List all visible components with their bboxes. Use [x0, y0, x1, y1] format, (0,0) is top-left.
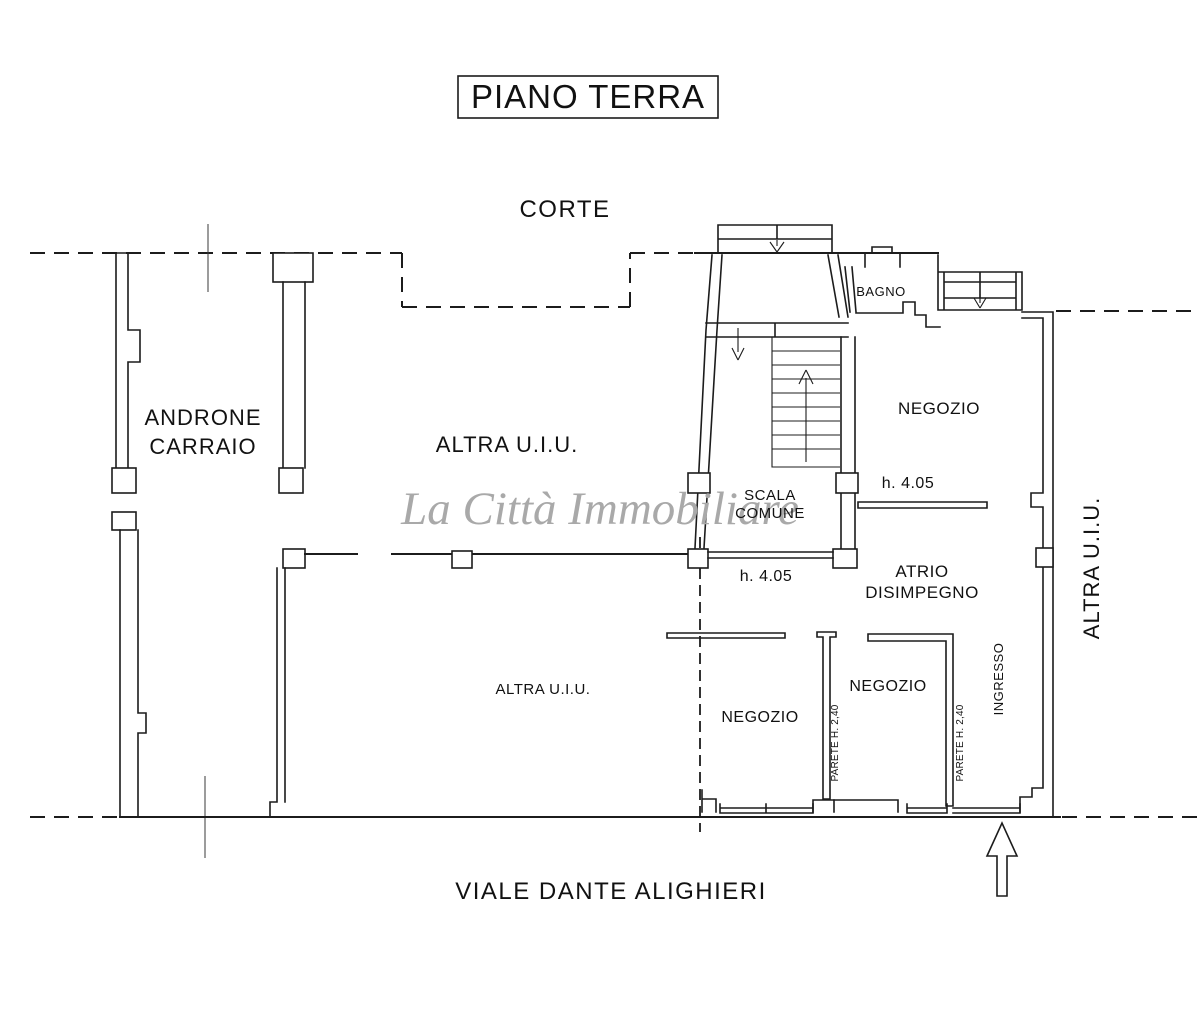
balcony-down-arrow: [770, 240, 784, 252]
label-negozio-left: NEGOZIO: [721, 709, 798, 726]
label-negozio-middle: NEGOZIO: [849, 678, 926, 695]
facade-recessed-front: [834, 800, 898, 812]
page-title: PIANO TERRA: [471, 78, 705, 115]
label-height-stair: h. 4.05: [740, 568, 792, 585]
driveway-lower-right-wall: [270, 568, 285, 817]
floor-plan-page: PIANO TERRA La Città Immobiliare CORTE V…: [0, 0, 1203, 1024]
shop-window-middle: [907, 804, 947, 813]
label-androne-1: ANDRONE: [144, 405, 261, 430]
label-height-shop: h. 4.05: [882, 475, 934, 492]
pilaster: [279, 468, 303, 493]
label-street: VIALE DANTE ALIGHIERI: [455, 878, 767, 905]
label-corte: CORTE: [519, 196, 610, 223]
label-parete-right: PARETE H. 2,40: [955, 704, 966, 781]
title-box: PIANO TERRA: [458, 76, 718, 118]
label-altra-uiu-center: ALTRA U.I.U.: [436, 432, 578, 457]
label-altra-uiu-lower: ALTRA U.I.U.: [496, 681, 591, 698]
bagno-chimney: [865, 247, 900, 267]
label-androne-2: CARRAIO: [149, 434, 256, 459]
label-bagno: BAGNO: [856, 284, 905, 299]
stair-down-arrow: [732, 328, 744, 360]
stair-landing-band: [706, 323, 848, 337]
shop-window-left: [720, 804, 813, 813]
label-altra-uiu-right: ALTRA U.I.U.: [1079, 497, 1104, 639]
atrio-lower-partition: [667, 633, 785, 638]
pilaster: [688, 549, 708, 568]
label-atrio-2: DISIMPEGNO: [865, 583, 979, 602]
lower-left-wall: [120, 530, 146, 817]
pilaster: [836, 473, 858, 493]
label-atrio-1: ATRIO: [895, 562, 948, 581]
negozio-atrio-partition: [858, 502, 987, 508]
label-scala-1: SCALA: [744, 487, 796, 504]
stair-bottom-wall: [708, 552, 833, 558]
window-bay-arrow: [974, 294, 986, 308]
shop-partitions: [667, 632, 953, 806]
pilaster: [112, 512, 136, 530]
label-negozio-top: NEGOZIO: [898, 399, 980, 418]
pilaster: [283, 549, 305, 568]
boundary-dashed-lines: [30, 253, 1200, 832]
pilaster: [112, 468, 136, 493]
negozio-middle-walls: [868, 634, 953, 806]
street-facade: [120, 790, 1060, 817]
label-scala-2: COMUNE: [735, 505, 805, 522]
pilaster: [452, 551, 472, 568]
courtyard-boundary-dash: [30, 253, 694, 307]
pilaster: [1036, 548, 1053, 567]
pilaster: [833, 549, 857, 568]
entrance-arrow: [987, 823, 1017, 896]
label-ingresso: INGRESSO: [991, 643, 1006, 716]
shop-window-entrance: [953, 804, 1020, 813]
stair-right-wall-lower: [841, 337, 855, 549]
stair-right-wall-upper: [828, 255, 848, 317]
stair-up-arrow: [799, 370, 813, 462]
label-parete-left: PARETE H. 2,40: [830, 704, 841, 781]
androne-right-wall-cap: [273, 253, 313, 282]
floor-plan-svg: PIANO TERRA La Città Immobiliare CORTE V…: [0, 0, 1203, 1024]
facade-step-mid1: [813, 800, 834, 812]
androne-left-wall: [116, 253, 140, 468]
androne-right-wall: [283, 282, 305, 468]
facade-left-step: [702, 790, 716, 812]
centerlines: [205, 224, 208, 858]
